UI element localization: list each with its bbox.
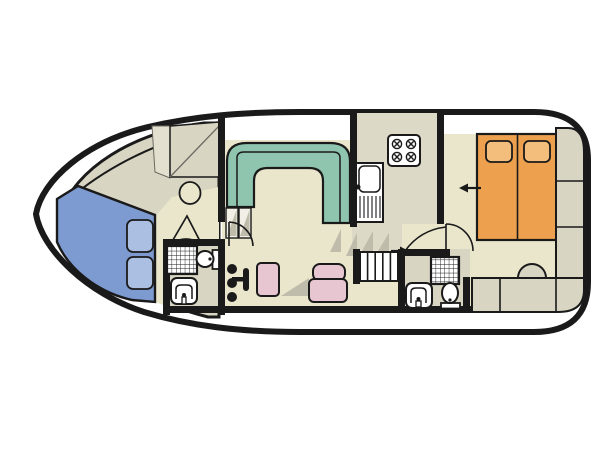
aft-bed-pillow — [524, 141, 550, 162]
wall — [463, 277, 470, 313]
companionway-stairs — [360, 252, 398, 281]
boat-floorplan — [0, 0, 600, 450]
helm-seat — [257, 263, 279, 296]
aft-double-bed — [477, 134, 558, 240]
v-berth-pillow — [127, 257, 153, 289]
forward-stool — [180, 182, 201, 204]
aft-sink — [406, 283, 432, 308]
forward-shower — [167, 246, 197, 274]
sink-tap — [356, 185, 361, 190]
floorplan-svg — [0, 0, 600, 450]
forward-dash-light — [152, 126, 170, 178]
wall — [218, 117, 225, 222]
wall — [398, 249, 405, 313]
galley-stove — [388, 135, 420, 166]
copilot-seat — [309, 264, 347, 302]
stern-bench — [472, 278, 584, 312]
stern-lockers — [556, 128, 584, 278]
wall — [353, 249, 360, 284]
aft-shower — [431, 257, 459, 284]
galley-sink — [356, 163, 384, 222]
wall — [437, 113, 444, 224]
v-berth-pillow — [127, 220, 153, 252]
helm-console-knobs — [227, 264, 237, 302]
forward-toilet — [197, 250, 220, 269]
forward-sink — [171, 278, 197, 304]
aft-toilet — [441, 283, 460, 309]
aft-bed-pillow — [486, 141, 512, 162]
